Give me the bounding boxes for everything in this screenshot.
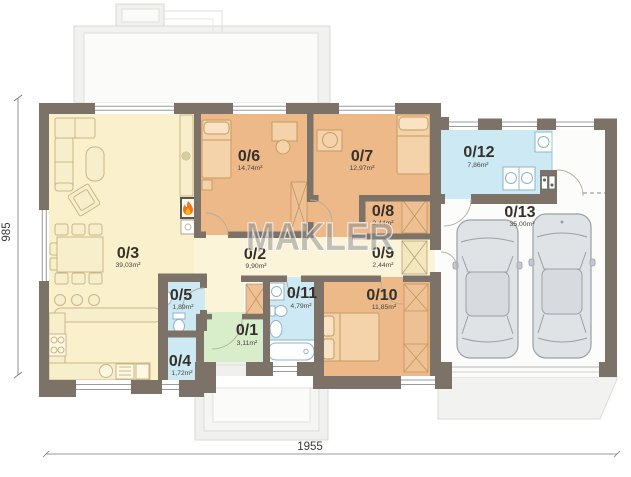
svg-text:0/6: 0/6 — [238, 148, 260, 165]
svg-text:0/12: 0/12 — [463, 144, 494, 161]
svg-text:7,86m²: 7,86m² — [467, 162, 489, 169]
svg-text:35,00m²: 35,00m² — [510, 221, 536, 228]
svg-text:985: 985 — [1, 222, 13, 241]
svg-text:1955: 1955 — [297, 441, 323, 453]
svg-text:3,11m²: 3,11m² — [237, 340, 258, 347]
svg-text:39,03m²: 39,03m² — [116, 262, 142, 269]
svg-text:12,97m²: 12,97m² — [350, 165, 376, 172]
svg-text:0/10: 0/10 — [366, 287, 397, 304]
svg-text:0/5: 0/5 — [170, 287, 192, 304]
svg-text:1,72m²: 1,72m² — [171, 370, 193, 377]
svg-text:0/3: 0/3 — [117, 245, 139, 262]
svg-text:0/1: 0/1 — [236, 322, 258, 339]
svg-text:0/4: 0/4 — [169, 353, 191, 370]
svg-text:0/7: 0/7 — [351, 148, 373, 165]
svg-text:4,79m²: 4,79m² — [290, 303, 312, 310]
svg-text:14,74m²: 14,74m² — [238, 165, 264, 172]
svg-text:1,89m²: 1,89m² — [172, 304, 194, 311]
svg-text:0/11: 0/11 — [287, 285, 317, 302]
svg-text:0/13: 0/13 — [504, 204, 535, 221]
svg-text:2,44m²: 2,44m² — [372, 262, 394, 269]
svg-text:9,90m²: 9,90m² — [245, 263, 267, 270]
svg-text:11,85m²: 11,85m² — [372, 304, 397, 311]
svg-text:MAKLER: MAKLER — [246, 216, 394, 259]
